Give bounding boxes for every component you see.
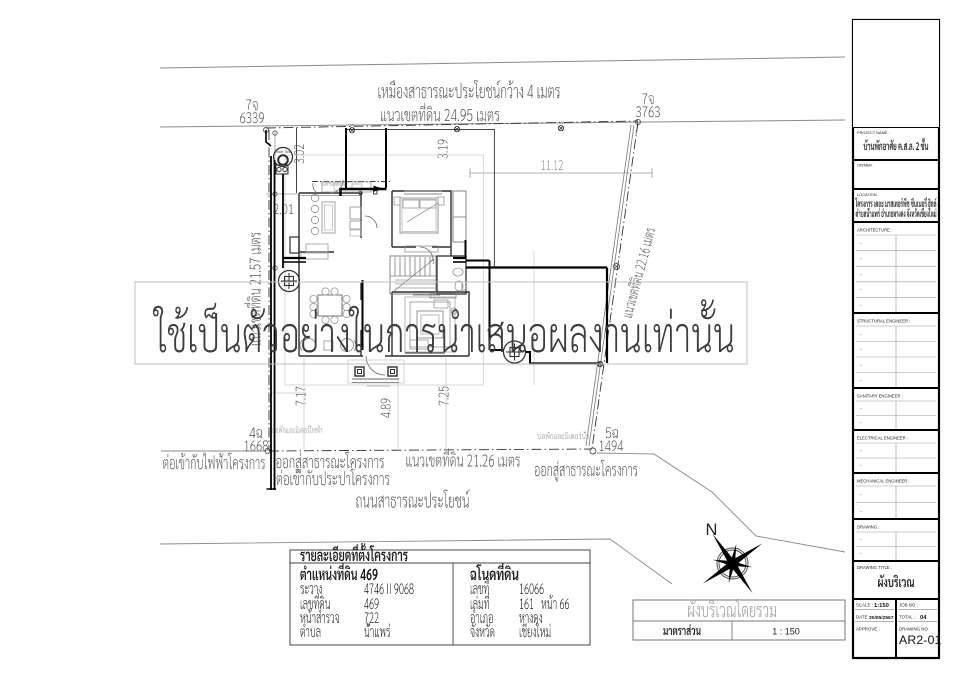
svg-text:STRUCTURAL ENGINEER :: STRUCTURAL ENGINEER : bbox=[857, 319, 910, 324]
svg-text:MH: MH bbox=[455, 122, 461, 126]
svg-text:30/05/2567: 30/05/2567 bbox=[869, 615, 894, 621]
svg-text:LOCATION :: LOCATION : bbox=[857, 192, 879, 197]
svg-text:04: 04 bbox=[920, 615, 927, 621]
svg-text:ARCHITECTURE :: ARCHITECTURE : bbox=[857, 228, 892, 233]
svg-text:DRAWING NO.: DRAWING NO. bbox=[899, 627, 929, 632]
svg-text:APPROVE :: APPROVE : bbox=[856, 627, 880, 632]
svg-text:MH: MH bbox=[559, 121, 565, 125]
svg-text:PROJECT NAME :: PROJECT NAME : bbox=[857, 130, 890, 135]
svg-text:1:150: 1:150 bbox=[874, 603, 889, 609]
svg-text:N: N bbox=[706, 521, 718, 539]
svg-text:Water Tank: Water Tank bbox=[275, 150, 291, 154]
svg-text:OWNER :: OWNER : bbox=[857, 163, 874, 168]
svg-text:SCALE :: SCALE : bbox=[856, 603, 873, 608]
svg-text:AR2-01: AR2-01 bbox=[899, 633, 942, 647]
svg-text:TOTAL :: TOTAL : bbox=[899, 615, 915, 620]
svg-text:JOB NO :: JOB NO : bbox=[899, 603, 918, 608]
svg-text:DATE :: DATE : bbox=[856, 615, 870, 620]
svg-text:MECHANICAL ENGINEER :: MECHANICAL ENGINEER : bbox=[857, 479, 910, 484]
svg-text:DRAWING :: DRAWING : bbox=[857, 525, 879, 530]
svg-text:DRAWING TITLE :: DRAWING TITLE : bbox=[857, 565, 892, 570]
svg-text:SANITARY ENGINEER :: SANITARY ENGINEER : bbox=[857, 394, 903, 399]
svg-text:MH: MH bbox=[350, 123, 356, 127]
svg-text:1 : 150: 1 : 150 bbox=[772, 627, 800, 637]
svg-text:ELECTRICAL ENGINEER :: ELECTRICAL ENGINEER : bbox=[857, 436, 908, 441]
